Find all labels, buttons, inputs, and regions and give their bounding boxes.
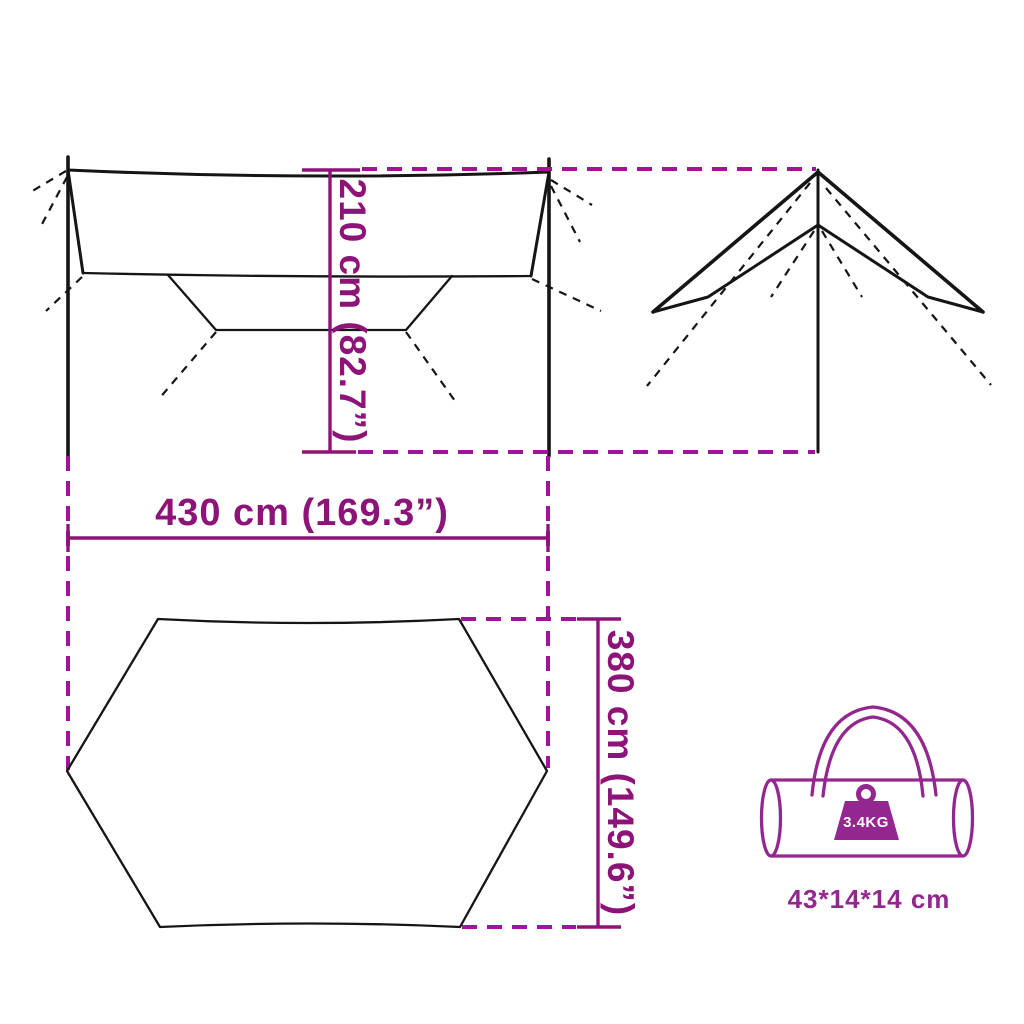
guy-line [551,180,592,205]
bag-weight-label: 3.4KG [843,814,889,831]
height-dimension: 210 cm (82.7”) [302,169,816,452]
guy-line [41,177,67,226]
depth-dimension: 380 cm (149.6”) [461,619,641,927]
guy-line [406,332,455,401]
bag-end-left [762,780,781,856]
weight-icon: 3.4KG [834,787,899,841]
depth-dimension-label: 380 cm (149.6”) [600,630,641,917]
top-view [67,619,547,927]
weight-icon-loop [859,787,874,802]
width-dimension: 430 cm (169.3”) [68,456,548,770]
height-dimension-label: 210 cm (82.7”) [332,179,373,444]
top-view-hexagon [67,619,547,927]
side-inner-right-edge [818,225,983,312]
guy-line [46,277,82,311]
side-inner-left-edge [653,225,818,312]
side-view [647,170,991,452]
guy-line [158,332,216,400]
bag-handle-outer [812,707,936,795]
front-bottom-edge [83,273,531,277]
front-view [29,157,601,456]
carry-bag-icon: 3.4KG 43*14*14 cm [762,707,973,914]
tarp-dimension-diagram: 210 cm (82.7”) 430 cm (169.3”) 380 cm (1… [0,0,1024,1024]
front-left-edge [68,170,83,273]
bag-handle-inner [823,717,923,796]
front-right-edge [531,172,549,276]
width-dimension-label: 430 cm (169.3”) [155,492,449,534]
bag-end-right [954,780,973,856]
guy-line [532,279,601,311]
guy-line [826,188,991,385]
bag-size-label: 43*14*14 cm [788,884,951,914]
front-rear-skirt [168,275,452,330]
guy-line [29,171,66,193]
guy-line [551,186,580,242]
front-guy-lines [29,171,601,401]
diagram-canvas: 210 cm (82.7”) 430 cm (169.3”) 380 cm (1… [0,0,1024,1024]
